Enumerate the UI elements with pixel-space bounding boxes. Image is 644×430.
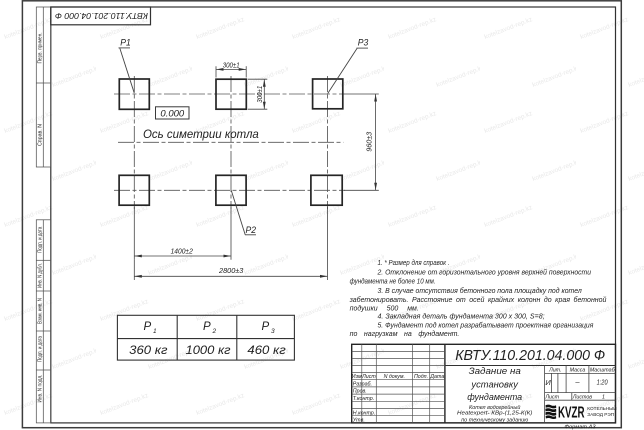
svg-text:Лист: Лист (361, 374, 376, 380)
svg-text:1000 кг: 1000 кг (186, 343, 231, 357)
svg-text:Пров.: Пров. (353, 389, 367, 395)
svg-text:Изм: Изм (352, 374, 362, 380)
svg-text:Масса: Масса (570, 367, 586, 373)
svg-text:Heatexpert- КВр-(1,25-К(К): Heatexpert- КВр-(1,25-К(К) (457, 411, 533, 417)
svg-text:5. Фундамент под котел разраб: 5. Фундамент под котел разрабатывает про… (378, 322, 594, 330)
svg-text:1400±2: 1400±2 (171, 246, 193, 255)
svg-text:Лист: Лист (544, 395, 559, 401)
svg-text:Разраб.: Разраб. (353, 382, 372, 388)
svg-text:P: P (262, 321, 270, 333)
svg-text:Подп. и дата: Подп. и дата (38, 336, 44, 362)
svg-text:установку: установку (470, 379, 519, 390)
svg-text:Перв. примен.: Перв. примен. (38, 33, 44, 64)
svg-text:Справ. N: Справ. N (38, 124, 44, 146)
svg-text:Подп.: Подп. (414, 374, 428, 380)
svg-text:1: 1 (153, 328, 157, 335)
svg-text:Инв. N подл.: Инв. N подл. (38, 375, 44, 403)
svg-text:Задание на: Задание на (469, 366, 521, 377)
svg-text:КОТЕЛЬНЫЙ: КОТЕЛЬНЫЙ (587, 404, 616, 411)
svg-text:300±1: 300±1 (223, 60, 240, 69)
svg-text:P: P (144, 321, 152, 333)
svg-text:Листов: Листов (572, 395, 593, 401)
svg-text:1:20: 1:20 (597, 377, 608, 386)
svg-text:Инв. N дубл.: Инв. N дубл. (38, 263, 44, 288)
svg-text:подушки 500 мм.: подушки 500 мм. (350, 304, 419, 312)
svg-text:Взам. инв. N: Взам. инв. N (38, 298, 44, 324)
svg-text:0.000: 0.000 (160, 108, 184, 119)
svg-text:2. Отклонение от горизонтальн: 2. Отклонение от горизонтального уровня … (377, 269, 592, 277)
svg-text:3. В случае отсутствия бетонн: 3. В случае отсутствия бетонного пола пл… (378, 287, 582, 295)
svg-text:по техническому заданию: по техническому заданию (461, 417, 529, 423)
svg-text:КВТУ.110.201.04.000 Ф: КВТУ.110.201.04.000 Ф (54, 11, 148, 20)
svg-text:1: 1 (602, 395, 605, 401)
svg-text:–: – (574, 377, 580, 386)
svg-text:2: 2 (212, 328, 217, 335)
svg-text:фундамента не более 10 мм.: фундамента не более 10 мм. (350, 278, 436, 286)
svg-text:Масштаб: Масштаб (590, 367, 616, 373)
svg-text:Лит.: Лит. (548, 367, 561, 373)
svg-text:по нагрузкам на фундамент.: по нагрузкам на фундамент. (350, 330, 460, 338)
svg-text:960±3: 960±3 (364, 132, 373, 152)
svg-text:KVZR: KVZR (558, 403, 585, 421)
svg-text:P1: P1 (120, 37, 131, 48)
svg-text:И: И (545, 378, 551, 387)
svg-text:360 кг: 360 кг (129, 343, 167, 357)
svg-text:Т.контр.: Т.контр. (353, 396, 374, 402)
svg-text:1. * Размер для справок .: 1. * Размер для справок . (378, 259, 450, 267)
svg-text:Формат А3: Формат А3 (565, 424, 597, 430)
svg-text:3: 3 (271, 328, 275, 335)
svg-text:N докум.: N докум. (384, 374, 405, 380)
svg-text:забетонировать. Расстояние от: забетонировать. Расстояние от осей крайн… (349, 296, 607, 304)
svg-text:P: P (203, 321, 211, 333)
svg-text:фундамента: фундамента (467, 392, 522, 403)
svg-text:Н.контр.: Н.контр. (353, 410, 375, 416)
svg-text:2800±3: 2800±3 (218, 266, 243, 275)
svg-text:Дата: Дата (429, 374, 444, 380)
svg-text:Утв.: Утв. (353, 418, 365, 424)
svg-text:Подп. и дата: Подп. и дата (38, 227, 44, 253)
svg-text:460 кг: 460 кг (247, 343, 285, 357)
svg-text:P3: P3 (358, 37, 369, 48)
svg-text:КВТУ.110.201.04.000 Ф: КВТУ.110.201.04.000 Ф (455, 348, 605, 364)
svg-text:300±1: 300±1 (255, 86, 264, 103)
svg-text:ЗАВОД РЭП: ЗАВОД РЭП (587, 412, 614, 417)
svg-text:4. Закладная деталь фундамент: 4. Закладная деталь фундамента 300 x 300… (378, 312, 545, 320)
svg-text:Ось симетрии котла: Ось симетрии котла (143, 129, 259, 141)
